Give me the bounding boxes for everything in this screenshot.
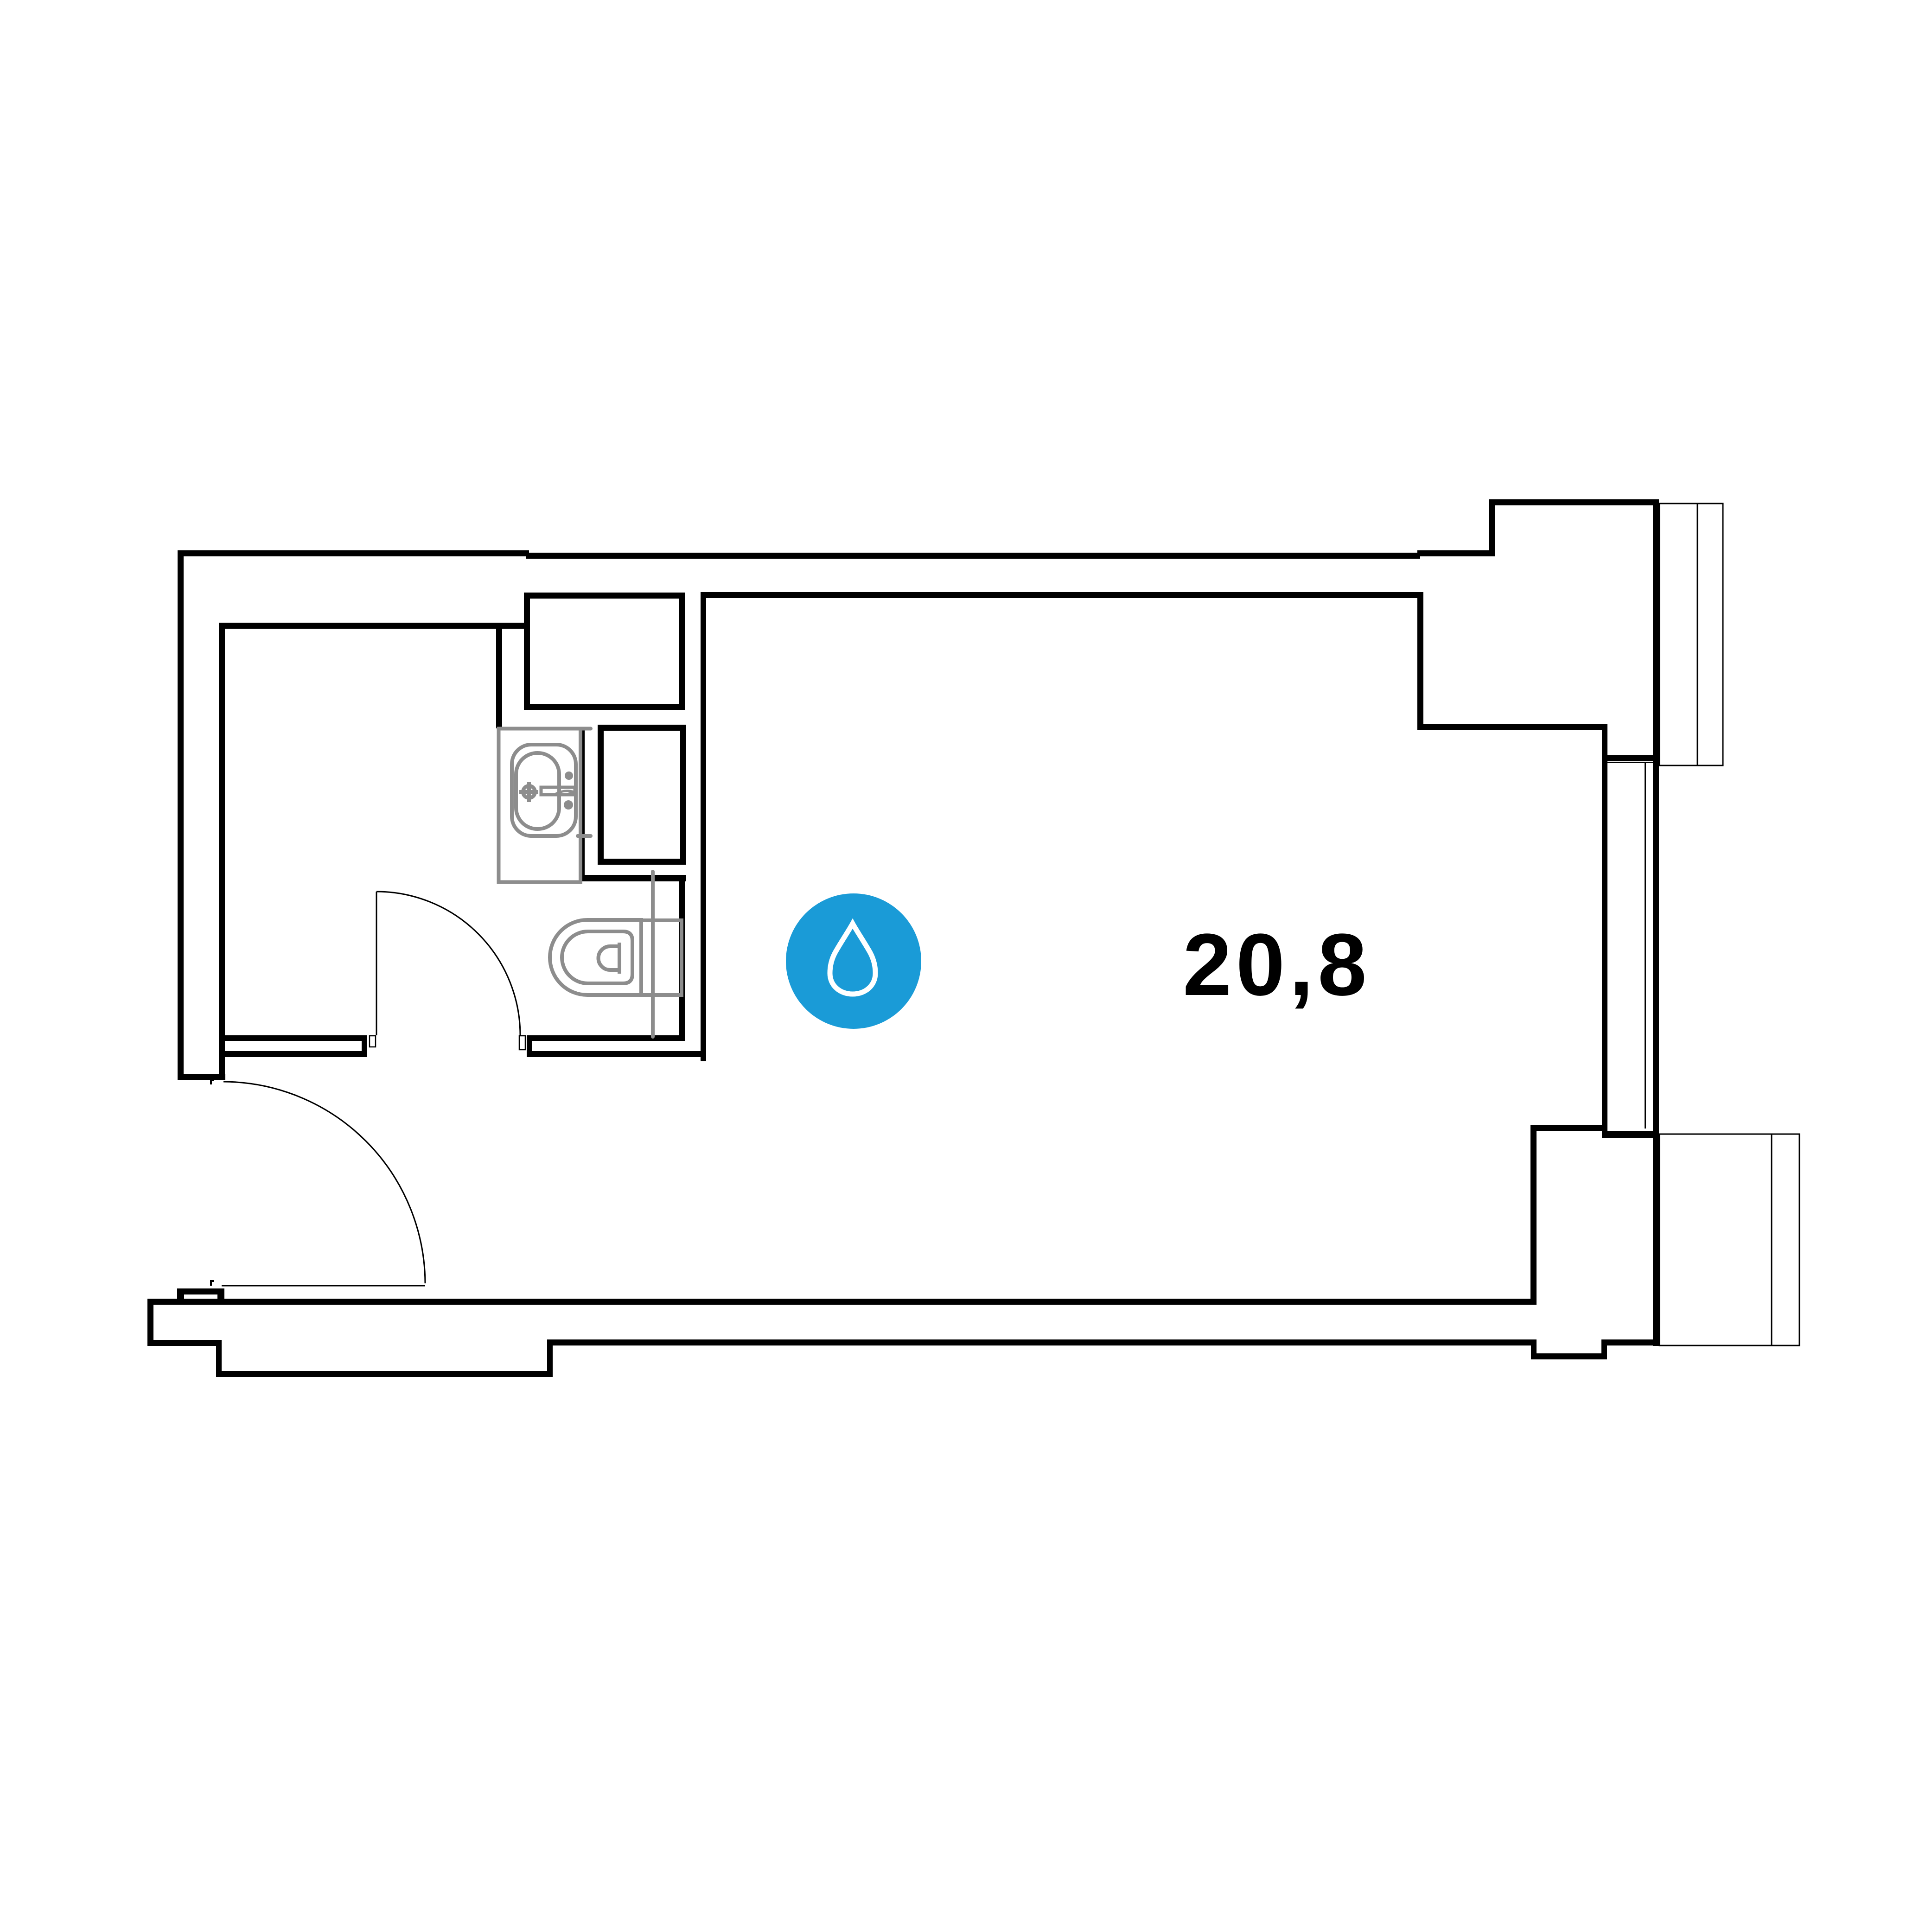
svg-text:20,8: 20,8 (1183, 916, 1371, 1014)
